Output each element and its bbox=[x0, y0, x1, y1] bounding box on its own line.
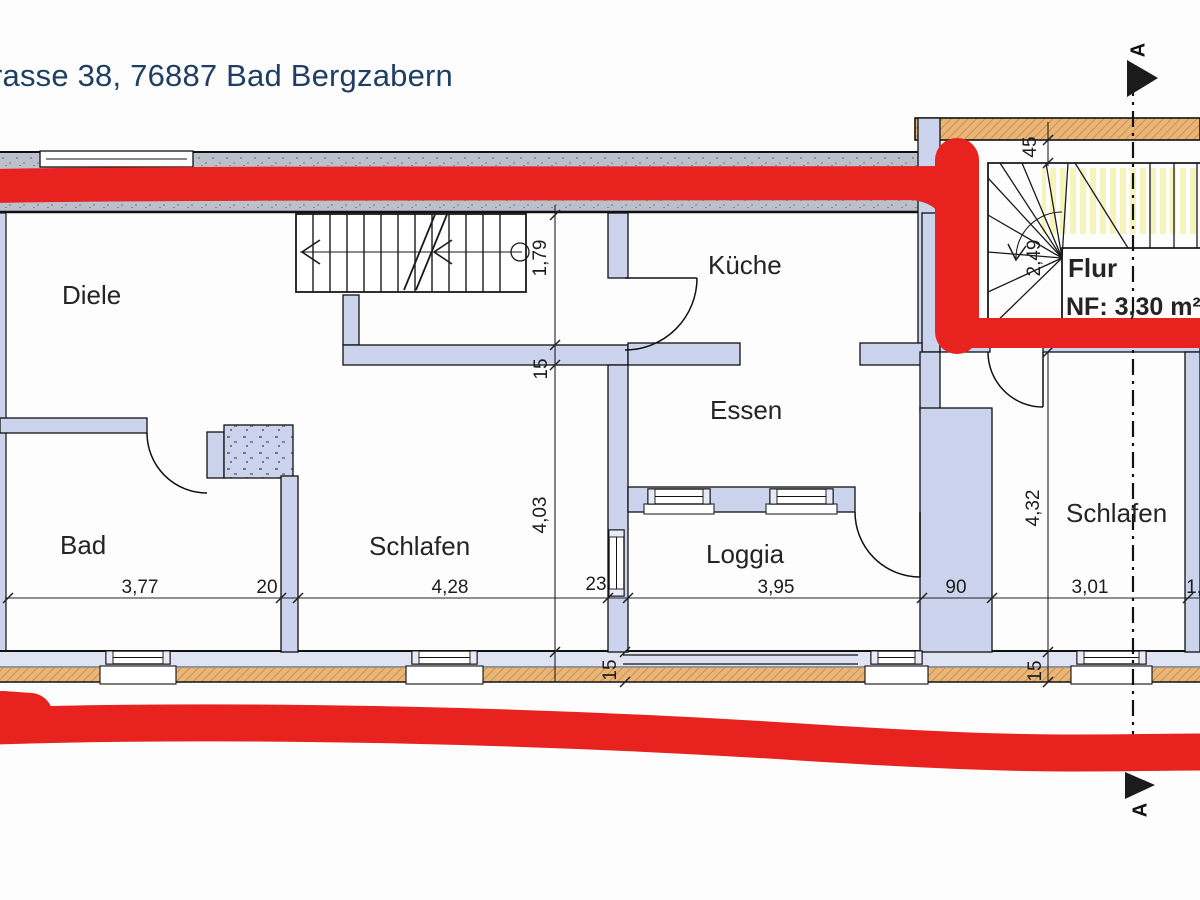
dim-stair-run: 2,49 bbox=[1024, 240, 1046, 277]
window-schlafen-right bbox=[1071, 651, 1152, 684]
staircase-straight bbox=[296, 212, 529, 292]
door-diele-bad bbox=[147, 433, 207, 493]
dim-wall-23: 23 bbox=[585, 574, 606, 596]
section-marker-a-top: A bbox=[1128, 43, 1151, 57]
dim-bottom-wall-15-left: 15 bbox=[600, 659, 622, 680]
red-stroke-top bbox=[0, 183, 938, 186]
door-essen-loggia bbox=[855, 512, 920, 577]
section-flag-top bbox=[1127, 60, 1158, 97]
room-label-schlafen-left: Schlafen bbox=[369, 531, 470, 562]
window-bad bbox=[100, 651, 176, 684]
room-label-bad: Bad bbox=[60, 530, 106, 561]
room-label-essen: Essen bbox=[710, 395, 782, 426]
room-label-diele: Diele bbox=[62, 280, 121, 311]
dim-wall-15-left: 15 bbox=[531, 358, 553, 379]
window-loggia-right bbox=[865, 651, 928, 684]
flur-area-label: NF: 3,30 m² bbox=[1066, 293, 1200, 322]
dim-bad-width: 3,77 bbox=[122, 577, 159, 599]
room-label-kueche: Küche bbox=[708, 250, 782, 281]
dim-cut-off-right: 1, bbox=[1186, 577, 1200, 599]
window-schlafen-left bbox=[406, 651, 483, 684]
window-essen-loggia-2 bbox=[766, 489, 837, 514]
page-title: rasse 38, 76887 Bad Bergzabern bbox=[0, 58, 453, 94]
door-diele-kueche bbox=[625, 278, 697, 350]
dim-room-depth-right: 4,32 bbox=[1023, 490, 1045, 527]
room-label-loggia: Loggia bbox=[706, 539, 784, 570]
dim-loggia-width: 3,95 bbox=[758, 577, 795, 599]
dim-wall-20: 20 bbox=[256, 577, 277, 599]
dim-wall-45: 45 bbox=[1020, 136, 1042, 157]
top-wall-window bbox=[40, 151, 193, 167]
dim-wall-90: 90 bbox=[945, 577, 966, 599]
dim-room-depth-left: 4,03 bbox=[530, 497, 552, 534]
dim-schlafen-right-width: 3,01 bbox=[1072, 577, 1109, 599]
dim-stair-opening: 1,79 bbox=[530, 240, 552, 277]
window-essen-loggia-1 bbox=[644, 489, 714, 514]
window-loggia-left bbox=[609, 530, 624, 596]
room-label-flur: Flur bbox=[1068, 253, 1117, 284]
section-flag-bottom bbox=[1125, 772, 1155, 799]
door-flur-schlafen bbox=[988, 352, 1043, 407]
dim-bottom-wall-15-right: 15 bbox=[1025, 660, 1047, 681]
section-marker-a-bottom: A bbox=[1130, 803, 1153, 817]
red-stroke-bottom bbox=[0, 723, 1200, 753]
dim-schlafen-left-width: 4,28 bbox=[432, 577, 469, 599]
exterior-walls bbox=[0, 118, 1200, 682]
room-label-schlafen-right: Schlafen bbox=[1066, 498, 1167, 529]
floorplan-drawing bbox=[0, 0, 1200, 900]
floorplan-page: rasse 38, 76887 Bad Bergzabern Diele Küc… bbox=[0, 0, 1200, 900]
